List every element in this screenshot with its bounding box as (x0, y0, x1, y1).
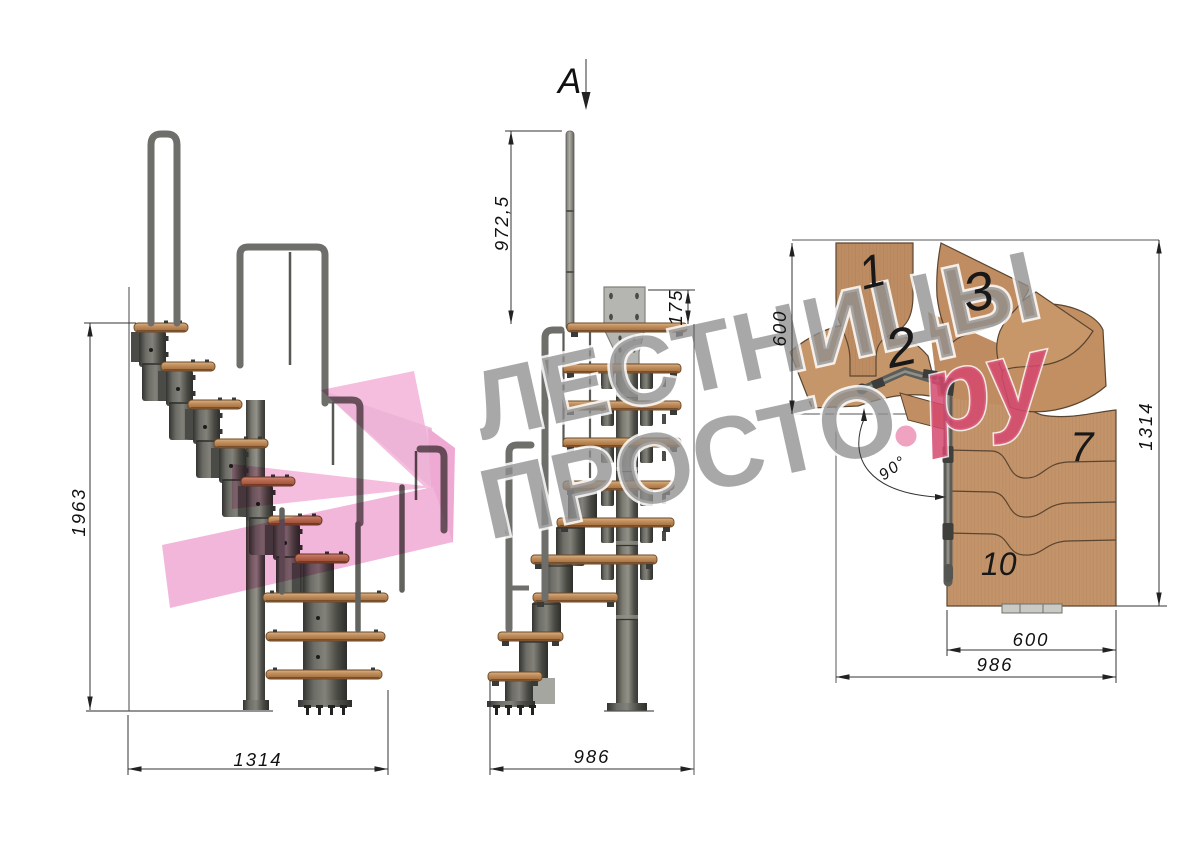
svg-text:972,5: 972,5 (491, 195, 512, 251)
svg-text:7: 7 (1070, 423, 1095, 470)
svg-text:1314: 1314 (1135, 401, 1156, 450)
svg-text:A: A (556, 62, 583, 101)
svg-text:10: 10 (981, 546, 1017, 582)
svg-text:986: 986 (977, 654, 1014, 675)
svg-text:600: 600 (769, 310, 790, 347)
svg-text:986: 986 (574, 746, 611, 767)
svg-text:1963: 1963 (68, 487, 89, 536)
svg-text:1314: 1314 (233, 749, 282, 770)
svg-text:600: 600 (1013, 629, 1050, 650)
svg-text:175: 175 (665, 289, 686, 326)
